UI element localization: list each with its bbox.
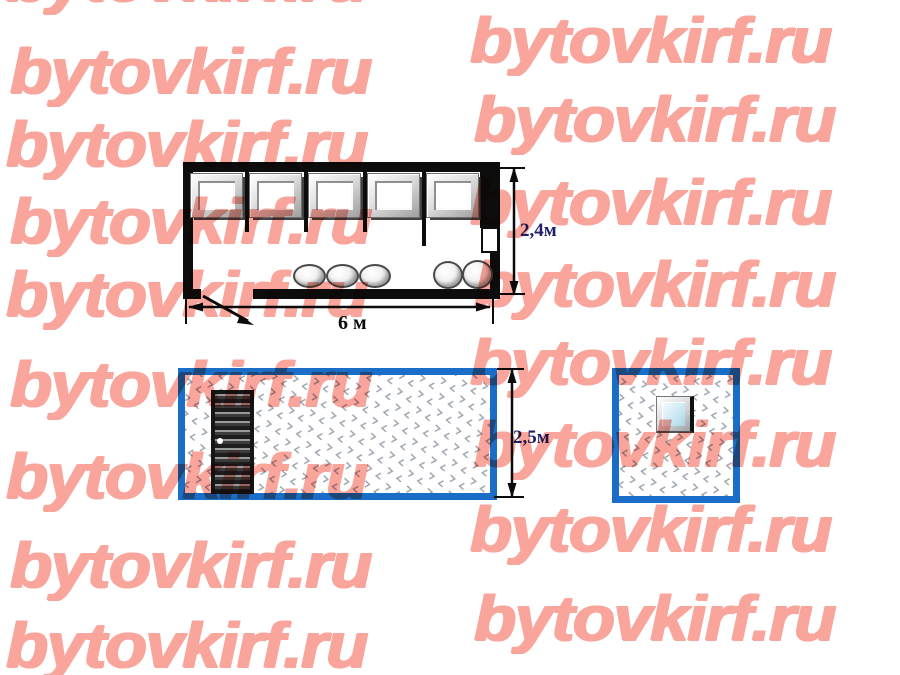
watermark-text: bytovkirf.ru [10,39,371,103]
watermark-text: bytovkirf.ru [470,8,831,72]
watermark-text: bytovkirf.ru [6,262,367,326]
watermark-text: bytovkirf.ru [6,444,367,508]
watermark-text: bytovkirf.ru [6,0,367,11]
watermark-text: bytovkirf.ru [474,586,835,650]
watermark-text: bytovkirf.ru [474,87,835,151]
watermark-text: bytovkirf.ru [10,352,371,416]
watermark-text: bytovkirf.ru [6,613,367,675]
watermark-text: bytovkirf.ru [470,170,831,234]
watermark-text: bytovkirf.ru [474,252,835,316]
watermark-text: bytovkirf.ru [470,330,831,394]
watermark-layer: bytovkirf.rubytovkirf.rubytovkirf.rubyto… [0,0,900,675]
watermark-text: bytovkirf.ru [474,412,835,476]
watermark-text: bytovkirf.ru [10,189,371,253]
diagram-canvas: 2,4м 6 м 2,5м bytovkirf.rubytovkirf.ruby… [0,0,900,675]
watermark-text: bytovkirf.ru [6,112,367,176]
watermark-text: bytovkirf.ru [470,497,831,561]
watermark-text: bytovkirf.ru [10,533,371,597]
